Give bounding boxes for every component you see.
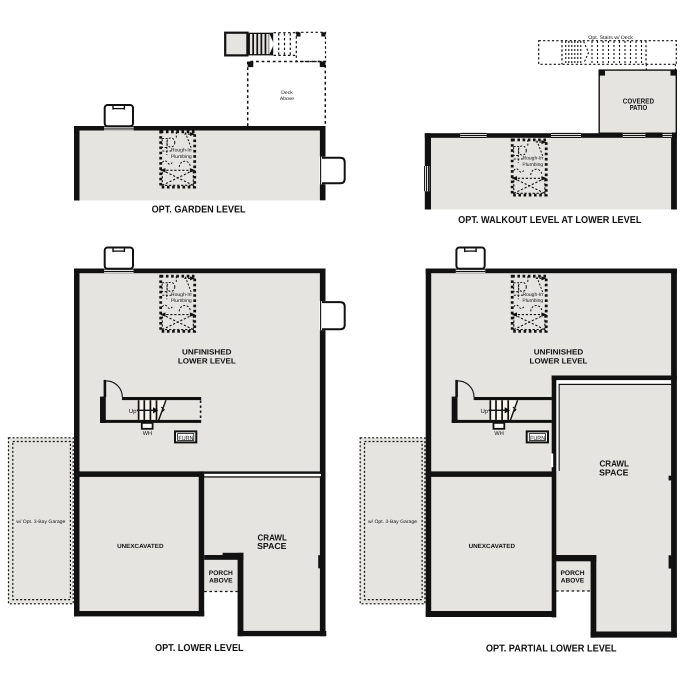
svg-text:UNEXCAVATED: UNEXCAVATED	[469, 543, 516, 550]
svg-text:w/ Opt. 3-Bay Garage: w/ Opt. 3-Bay Garage	[368, 519, 417, 525]
svg-text:UNFINISHED: UNFINISHED	[182, 348, 232, 357]
svg-text:OPT. LOWER LEVEL: OPT. LOWER LEVEL	[155, 643, 244, 654]
svg-text:PATIO: PATIO	[630, 103, 648, 112]
svg-text:LOWER LEVEL: LOWER LEVEL	[530, 356, 588, 365]
svg-text:PORCH: PORCH	[561, 570, 585, 577]
svg-text:WH: WH	[494, 431, 503, 437]
svg-text:ABOVE: ABOVE	[561, 577, 585, 584]
svg-text:Up: Up	[129, 408, 137, 415]
svg-text:FURN: FURN	[178, 435, 193, 442]
svg-text:SPACE: SPACE	[599, 467, 628, 477]
svg-text:Up: Up	[480, 408, 488, 415]
svg-text:UNEXCAVATED: UNEXCAVATED	[117, 543, 164, 550]
svg-text:WH: WH	[143, 431, 152, 437]
svg-text:SPACE: SPACE	[257, 541, 286, 551]
svg-text:Opt. Stairs w/ Deck: Opt. Stairs w/ Deck	[588, 35, 633, 41]
svg-text:OPT. PARTIAL LOWER LEVEL: OPT. PARTIAL LOWER LEVEL	[486, 644, 617, 655]
svg-text:PORCH: PORCH	[209, 570, 233, 577]
svg-text:Above: Above	[280, 96, 294, 102]
svg-text:Deck: Deck	[281, 90, 293, 96]
svg-text:OPT. WALKOUT LEVEL AT LOWER LE: OPT. WALKOUT LEVEL AT LOWER LEVEL	[458, 215, 641, 226]
svg-text:LOWER LEVEL: LOWER LEVEL	[178, 356, 236, 365]
svg-text:FURN: FURN	[530, 435, 545, 442]
svg-text:OPT. GARDEN LEVEL: OPT. GARDEN LEVEL	[152, 204, 246, 215]
svg-text:ABOVE: ABOVE	[209, 577, 233, 584]
svg-text:UNFINISHED: UNFINISHED	[534, 348, 584, 357]
svg-text:w/ Opt. 3-Bay Garage: w/ Opt. 3-Bay Garage	[16, 519, 65, 525]
